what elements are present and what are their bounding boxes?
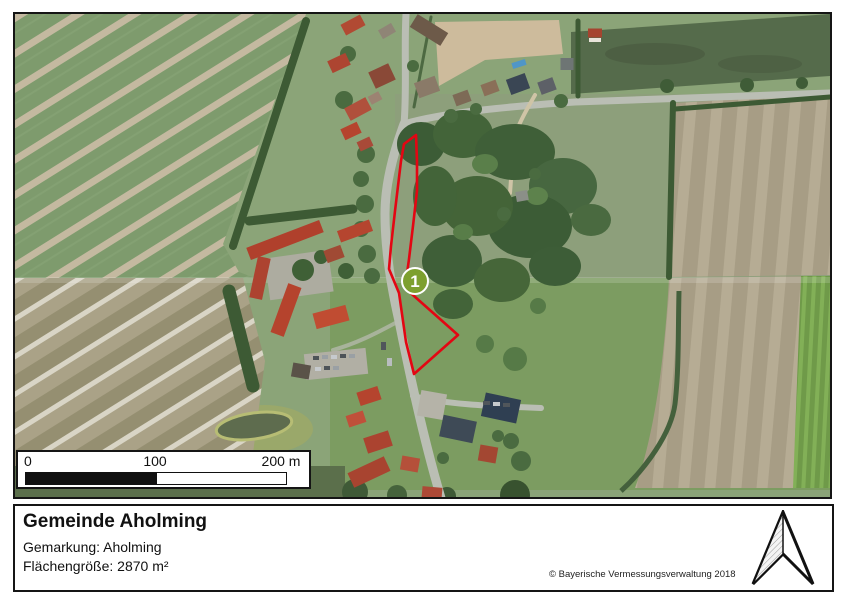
scale-bar-empty-segment: [156, 473, 287, 484]
scale-bar-ruler: [25, 472, 287, 485]
scale-tick-100: 100: [143, 453, 166, 469]
gemarkung-line: Gemarkung: Aholming: [23, 539, 162, 555]
scale-bar: 0 100 200 m: [16, 450, 311, 489]
info-panel: Gemeinde Aholming Gemarkung: Aholming Fl…: [13, 504, 834, 592]
north-arrow-icon: [750, 510, 816, 588]
copyright-notice: © Bayerische Vermessungsverwaltung 2018: [549, 569, 736, 580]
map-canvas: 1 0 100 200 m: [13, 12, 832, 499]
scale-bar-filled-segment: [26, 473, 156, 484]
scale-tick-200: 200 m: [262, 453, 301, 469]
map-sheet: 1 0 100 200 m Gemeinde Aholming Gemarkun…: [0, 0, 850, 601]
area-line: Flächengröße: 2870 m²: [23, 558, 169, 574]
scale-tick-0: 0: [24, 453, 32, 469]
page-title: Gemeinde Aholming: [23, 511, 207, 533]
tilled-field-upper: [667, 94, 830, 277]
parcel-marker-label: 1: [410, 272, 419, 291]
aerial-photo: 1: [15, 14, 830, 497]
parcel-marker: 1: [402, 268, 428, 294]
